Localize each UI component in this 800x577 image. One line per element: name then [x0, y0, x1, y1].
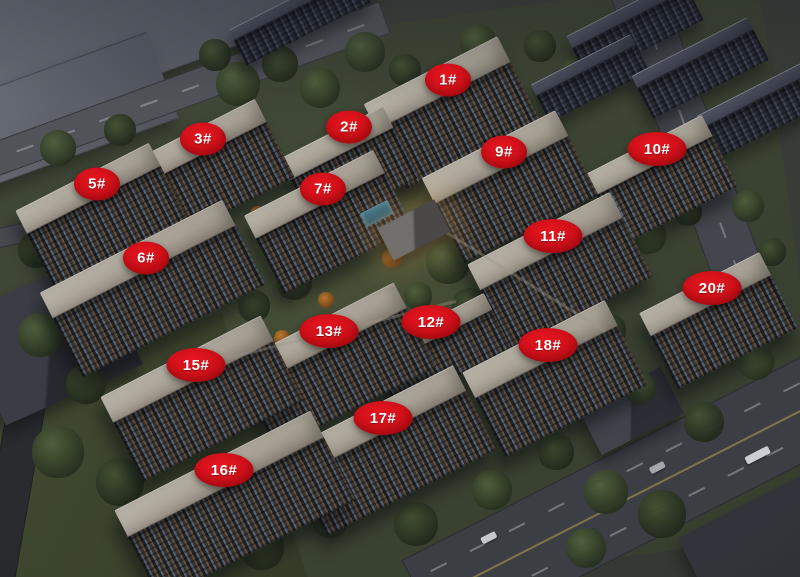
- building-marker-label: 15#: [183, 357, 210, 374]
- building-marker-label: 11#: [540, 228, 566, 245]
- building-marker-2[interactable]: 2#: [326, 111, 372, 144]
- building-marker-label: 7#: [314, 181, 332, 198]
- building-marker-label: 17#: [370, 410, 397, 427]
- building-marker-1[interactable]: 1#: [425, 64, 471, 97]
- building-marker-18[interactable]: 18#: [519, 328, 578, 362]
- building-marker-label: 5#: [88, 176, 106, 193]
- building-marker-16[interactable]: 16#: [195, 453, 254, 487]
- building-marker-label: 3#: [194, 131, 212, 148]
- building-marker-label: 10#: [644, 141, 671, 158]
- building-marker-6[interactable]: 6#: [123, 242, 169, 275]
- building-marker-label: 6#: [137, 250, 155, 267]
- building-marker-5[interactable]: 5#: [74, 168, 120, 201]
- building-marker-13[interactable]: 13#: [300, 314, 359, 348]
- building-marker-7[interactable]: 7#: [300, 173, 346, 206]
- building-marker-label: 13#: [316, 323, 343, 340]
- building-marker-label: 20#: [699, 280, 726, 297]
- building-marker-10[interactable]: 10#: [628, 132, 687, 166]
- building-marker-11[interactable]: 11#: [524, 219, 583, 253]
- building-marker-label: 16#: [211, 462, 238, 479]
- building-marker-9[interactable]: 9#: [481, 136, 527, 169]
- building-marker-label: 2#: [340, 119, 358, 136]
- aerial-site-plan: 1#2#3#5#6#7#9#10#11#12#13#15#16#17#18#20…: [0, 0, 800, 577]
- building-marker-label: 1#: [439, 72, 457, 89]
- building-marker-20[interactable]: 20#: [683, 271, 742, 305]
- building-marker-label: 18#: [535, 337, 562, 354]
- markers-layer: 1#2#3#5#6#7#9#10#11#12#13#15#16#17#18#20…: [0, 0, 800, 577]
- building-marker-3[interactable]: 3#: [180, 123, 226, 156]
- building-marker-label: 12#: [418, 314, 445, 331]
- building-marker-17[interactable]: 17#: [354, 401, 413, 435]
- building-marker-12[interactable]: 12#: [402, 305, 461, 339]
- building-marker-15[interactable]: 15#: [167, 348, 226, 382]
- building-marker-label: 9#: [495, 144, 513, 161]
